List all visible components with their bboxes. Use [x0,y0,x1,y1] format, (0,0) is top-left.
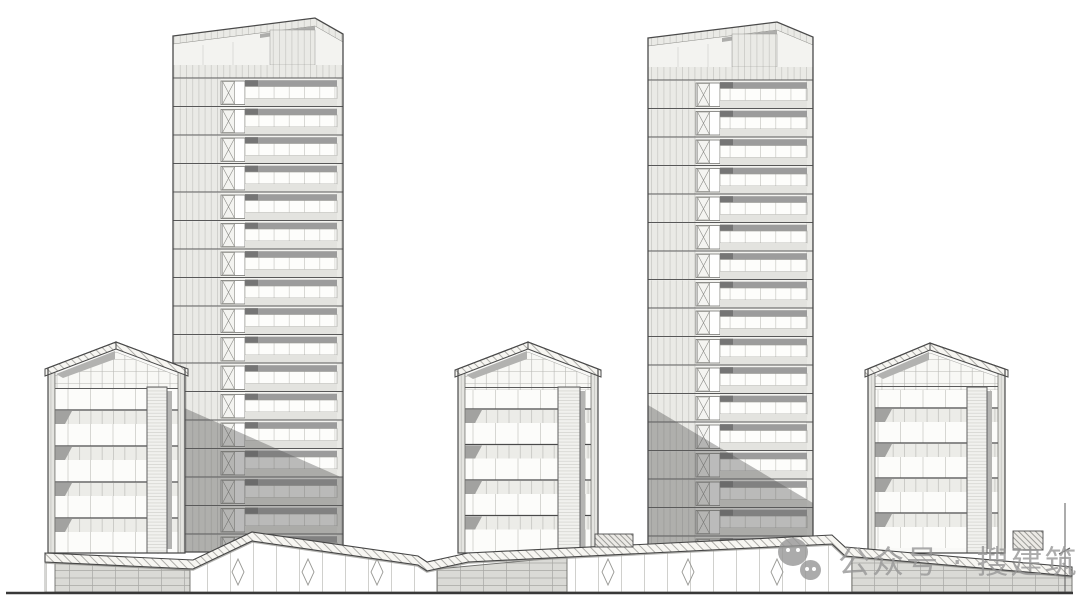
lintel-band [720,225,807,231]
sill-band [245,327,337,335]
sill-band [720,329,807,337]
window-band [245,372,337,384]
pier-left [48,368,55,553]
lintel-corner [245,109,258,115]
tower-right-inner [648,22,813,565]
lintel-corner [245,137,258,143]
tower-floor [648,223,813,252]
panel-texture [174,164,221,192]
right-pier [337,135,344,164]
window-band [245,87,337,99]
lintel-band [245,80,337,86]
lintel-band [245,251,337,257]
lintel-corner [720,139,733,145]
right-pier [337,278,344,307]
right-pier [807,422,814,451]
tower-floor [648,109,813,138]
panel-texture [649,138,696,166]
pier-left [458,369,465,553]
lintel-band [245,166,337,172]
lintel-corner [245,337,258,343]
window-band [245,144,337,156]
panel-texture [649,195,696,223]
lintel-band [245,194,337,200]
podium-roof-block [595,534,633,547]
tower-floor [173,278,343,307]
tower-floor [173,78,343,107]
sill-band [245,355,337,363]
tower-floor [648,166,813,195]
lintel-corner [245,223,258,229]
tower-floor [648,280,813,309]
right-pier [337,420,344,449]
tower-floor [173,135,343,164]
lintel-band [720,139,807,145]
window-band [720,203,807,215]
window-band [245,172,337,184]
window-band [720,431,807,443]
pier-left [868,369,875,553]
right-pier [807,251,814,280]
panel-texture [174,307,221,335]
window-band [245,258,337,270]
panel-texture [649,309,696,337]
lintel-corner [720,225,733,231]
sill-band [720,386,807,394]
window-band [720,345,807,357]
right-pier [807,80,814,109]
sill-band [245,298,337,306]
core-shadow [167,391,172,549]
right-pier [337,192,344,221]
lintel-corner [720,168,733,174]
lintel-corner [245,280,258,286]
window-band [720,231,807,243]
sill-band [245,184,337,192]
sill-band [720,186,807,194]
podium-roof-block [1013,531,1043,550]
tower-floor [648,365,813,394]
tower-floor [648,337,813,366]
window-band [245,201,337,213]
window-band [245,115,337,127]
sill-band [720,101,807,109]
lintel-corner [245,422,258,428]
window-band [720,117,807,129]
sill-band [720,215,807,223]
right-pier [337,306,344,335]
window-band [720,402,807,414]
window-band [245,429,337,441]
tower-floor [648,308,813,337]
lintel-band [245,223,337,229]
tower-left [173,18,343,563]
sill-band [720,300,807,308]
right-pier [807,308,814,337]
lintel-band [720,367,807,373]
lowrise-left [45,342,188,554]
lintel-band [720,196,807,202]
tower-floor [173,221,343,250]
lintel-band [720,82,807,88]
sill-band [245,213,337,221]
pier-right [591,369,598,553]
tower-floor [648,394,813,423]
lintel-band [720,253,807,259]
right-pier [337,249,344,278]
right-pier [337,335,344,364]
stair-core [967,387,987,553]
lintel-band [245,137,337,143]
lintel-band [720,282,807,288]
right-pier [337,221,344,250]
lintel-corner [720,282,733,288]
lintel-corner [720,253,733,259]
lintel-band [245,109,337,115]
tower-floor [173,107,343,136]
right-pier [807,137,814,166]
sill-band [720,243,807,251]
lintel-corner [720,396,733,402]
window-band [720,317,807,329]
panel-texture [649,109,696,137]
lintel-corner [245,251,258,257]
lintel-corner [720,310,733,316]
lintel-corner [245,194,258,200]
lintel-band [720,339,807,345]
tower-floor [648,194,813,223]
right-pier [807,223,814,252]
elevation-drawing: 公众号 · 搜建筑 [0,0,1080,608]
right-pier [807,394,814,423]
tower-floor [173,164,343,193]
right-pier [337,363,344,392]
right-pier [807,451,814,480]
sill-band [245,412,337,420]
sill-band [245,99,337,107]
panel-texture [174,136,221,164]
tower-floor [648,251,813,280]
sill-band [245,156,337,164]
lintel-band [720,168,807,174]
tower-floor [648,80,813,109]
crown-texture-block [732,34,777,67]
sill-band [720,443,807,451]
lintel-band [245,394,337,400]
window-band [245,229,337,241]
panel-texture [174,79,221,107]
sill-band [245,384,337,392]
lintel-corner [245,365,258,371]
panel-texture [649,223,696,251]
window-band [245,315,337,327]
lintel-corner [720,111,733,117]
window-band [720,288,807,300]
sill-band [245,127,337,135]
right-pier [807,365,814,394]
right-pier [807,109,814,138]
tower-floor [173,363,343,392]
sill-band [245,241,337,249]
lintel-band [720,310,807,316]
core-shadow [580,391,585,549]
elevation-canvas [0,0,1080,608]
lintel-corner [720,82,733,88]
right-pier [807,194,814,223]
lintel-corner [245,308,258,314]
sill-band [720,158,807,166]
right-pier [807,337,814,366]
window-band [720,260,807,272]
right-pier [337,107,344,136]
panel-texture [174,250,221,278]
lintel-band [720,424,807,430]
lintel-corner [720,367,733,373]
lintel-corner [245,80,258,86]
lintel-band [720,396,807,402]
lintel-band [720,111,807,117]
panel-texture [649,366,696,394]
tower-floor [648,137,813,166]
right-pier [807,280,814,309]
window-band [720,89,807,101]
sill-band [720,272,807,280]
panel-texture [649,280,696,308]
pier-right [178,368,185,553]
sill-band [720,414,807,422]
mechanical-band [648,67,813,80]
lintel-corner [720,339,733,345]
pier-right [998,369,1005,553]
sill-band [245,270,337,278]
panel-texture [174,221,221,249]
tower-floor [173,249,343,278]
panel-texture [174,107,221,135]
tower-left-inner [173,18,343,563]
lowrise-right [865,343,1008,553]
sill-band [720,129,807,137]
lintel-corner [245,166,258,172]
panel-texture [174,278,221,306]
tower-floor [173,192,343,221]
lintel-band [245,280,337,286]
crown-texture-block [270,30,315,65]
lintel-band [245,337,337,343]
lintel-band [245,308,337,314]
right-pier [337,164,344,193]
panel-texture [649,166,696,194]
window-band [245,343,337,355]
window-band [245,286,337,298]
sill-band [720,357,807,365]
right-pier [337,449,344,478]
lintel-corner [720,196,733,202]
lowrise-center [455,342,601,553]
lintel-corner [720,424,733,430]
panel-texture [649,252,696,280]
right-pier [337,78,344,107]
panel-texture [174,335,221,363]
mechanical-band [173,65,343,78]
panel-texture [649,81,696,109]
lintel-band [245,365,337,371]
window-band [720,374,807,386]
right-pier [337,392,344,421]
core-shadow [987,391,992,549]
tower-floor [173,335,343,364]
window-band [720,174,807,186]
tower-right [648,22,813,565]
stair-core [147,387,167,553]
stair-core [558,387,580,553]
window-band [245,400,337,412]
right-pier [807,166,814,195]
panel-texture [174,193,221,221]
tower-floor [173,306,343,335]
lintel-corner [245,394,258,400]
panel-texture [649,337,696,365]
window-band [720,146,807,158]
lintel-band [245,422,337,428]
